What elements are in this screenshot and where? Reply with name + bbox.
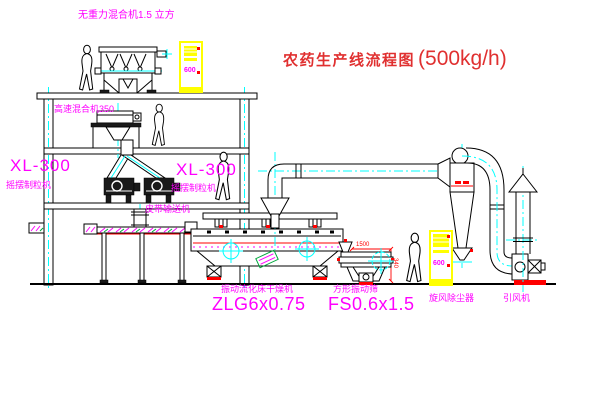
cabinet-top-text: 600 <box>184 67 196 74</box>
label-high-speed-mixer: 高速混合机350 <box>54 105 114 114</box>
label-gravity-mixer: 无重力混合机1.5 立方 <box>78 11 175 21</box>
drawing-title: 农药生产线流程图 (500kg/h) <box>283 47 507 71</box>
worker-figure-ground <box>407 233 421 281</box>
worker-figure-top-floor <box>152 104 164 145</box>
worker-figure-roof <box>80 45 93 90</box>
cyclone-separator <box>450 144 474 268</box>
label-dryer-name: 振动流化床干燥机 <box>221 285 293 294</box>
label-granulator-left-name: 摇摆制粒机 <box>6 181 51 190</box>
dimension-sieve-height: 340 <box>392 258 398 268</box>
gravity-free-mixer <box>95 47 172 93</box>
label-granulator-right-model: XL-300 <box>176 161 237 178</box>
label-granulator-right-name: 摇摆制粒机 <box>171 184 216 193</box>
label-sieve-model: FS0.6x1.5 <box>328 295 415 313</box>
swing-granulator-left <box>104 178 140 203</box>
label-cyclone: 旋风除尘器 <box>429 294 474 303</box>
y-chute <box>107 155 165 178</box>
title-chinese: 农药生产线流程图 <box>283 49 415 70</box>
label-fan: 引风机 <box>503 294 530 303</box>
cad-flowsheet: 农药生产线流程图 (500kg/h) 无重力混合机1.5 立方 高速混合机350… <box>0 0 600 403</box>
label-belt-conveyor: 皮带输送机 <box>145 205 190 214</box>
label-sieve-name: 方形振动筛 <box>333 285 378 294</box>
label-dryer-model: ZLG6x0.75 <box>212 295 306 313</box>
dimension-sieve-width: 1500 <box>356 242 369 248</box>
control-cabinet-bottom <box>430 231 452 285</box>
fluid-bed-dryer <box>185 213 343 280</box>
induced-draft-fan <box>512 254 546 285</box>
label-granulator-left-model: XL-300 <box>10 157 71 174</box>
cabinet-bottom-text: 600 <box>433 260 445 267</box>
title-capacity: (500kg/h) <box>418 47 507 71</box>
